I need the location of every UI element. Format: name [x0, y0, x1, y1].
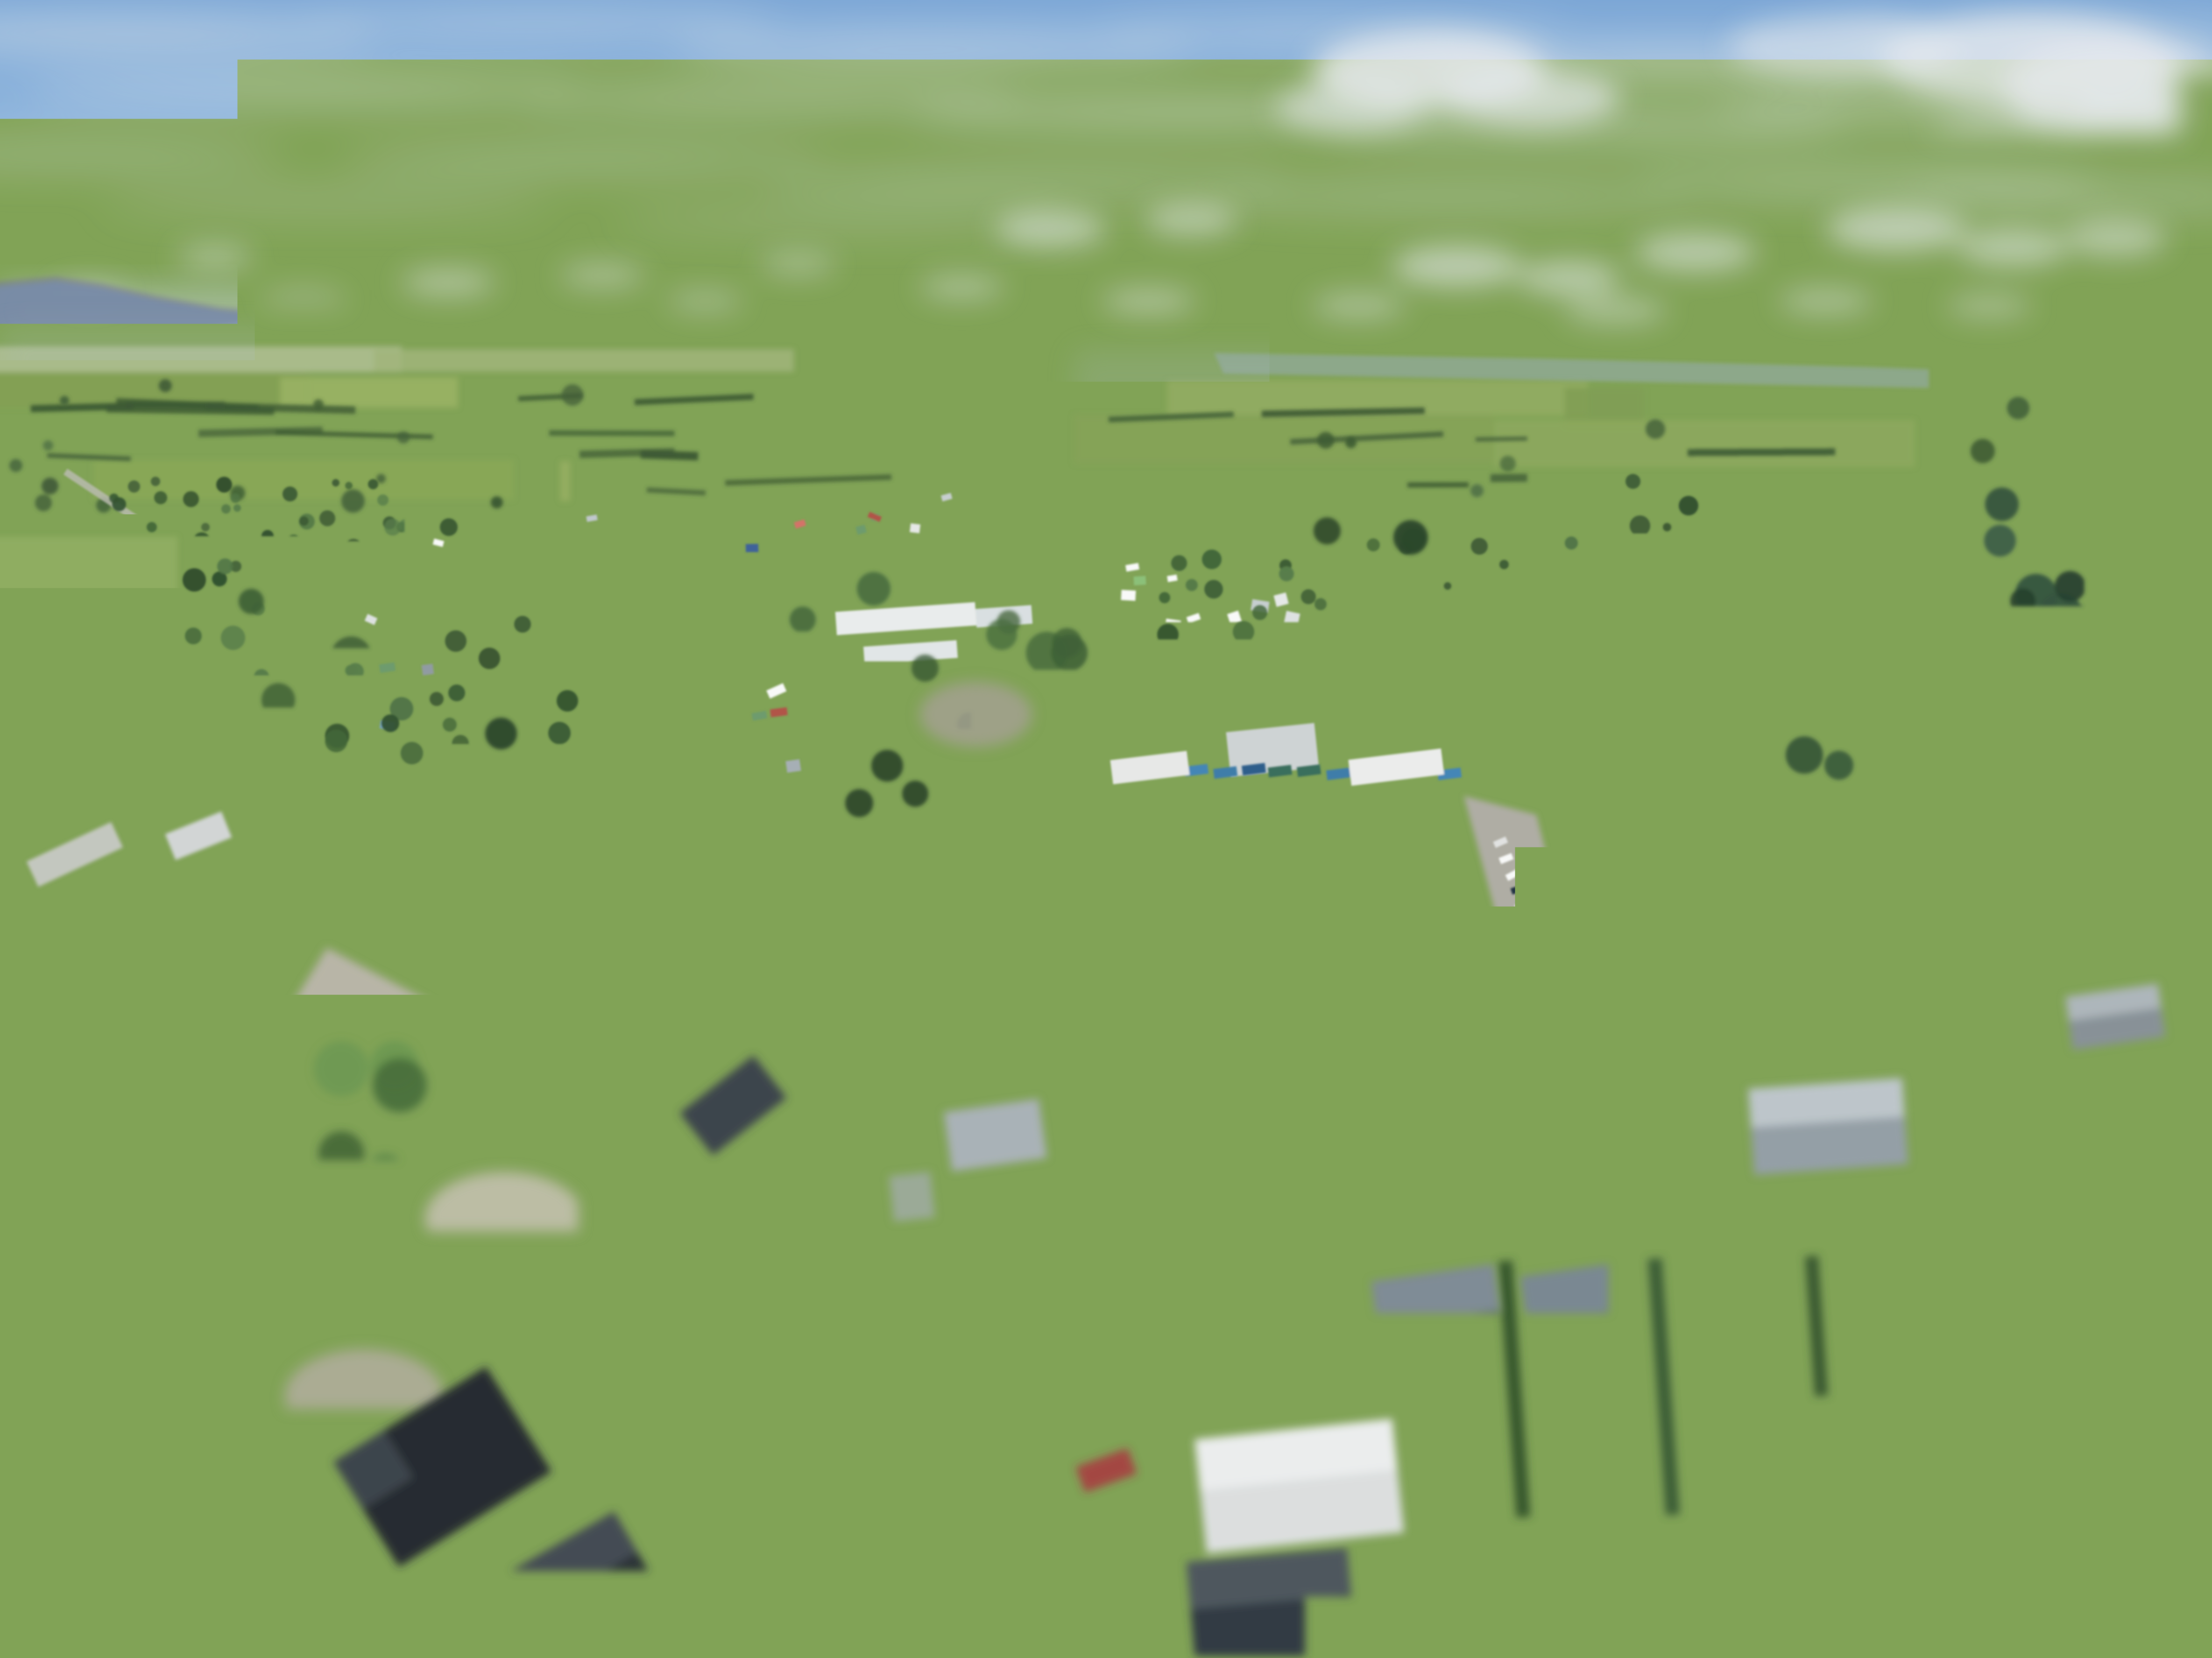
svg-text:CBD: CBD: [698, 395, 764, 443]
svg-text:Station: Station: [1130, 516, 1242, 563]
svg-text:Train: Train: [1146, 466, 1226, 512]
svg-text:FOR: FOR: [781, 1154, 867, 1212]
svg-text:Boundary Lines Indicative: Boundary Lines Indicative: [907, 1585, 1351, 1631]
svg-text:SALE: SALE: [771, 1217, 877, 1276]
